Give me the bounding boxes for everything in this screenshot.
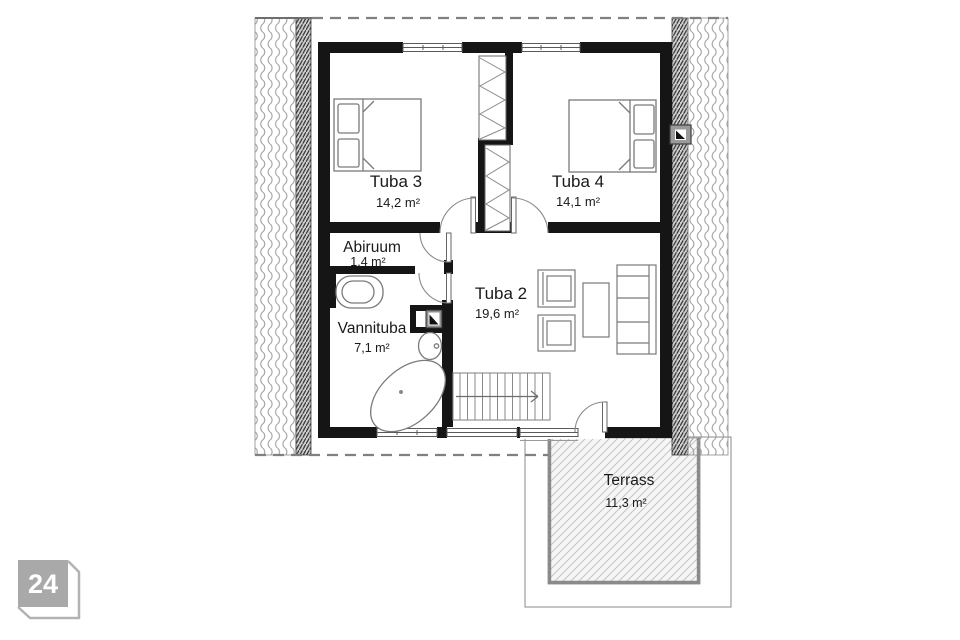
room-area-tuba3: 14,2 m² [376,195,421,210]
badge-number: 24 [28,569,58,599]
room-label-abiruum: Abiruum [343,239,401,256]
stairs [453,373,550,420]
room-area-abiruum: 1,4 m² [350,255,385,269]
roof-batten-band-left [296,18,311,455]
wall-top [318,42,672,53]
bed-icon-tuba3 [334,99,421,171]
roof-left [255,18,311,455]
room-label-tuba3: Tuba 3 [370,172,422,191]
window-icon [522,44,580,52]
room-area-tuba4: 14,1 m² [556,194,601,209]
roof-tile-hatch-left [255,18,296,455]
vent-icon [670,125,691,144]
room-area-terrass: 11,3 m² [605,496,646,510]
room-label-terrass: Terrass [604,472,655,489]
sofa-icon [617,265,656,354]
chimney-icon [410,305,444,333]
sink-icon [419,333,442,360]
roof-batten-band-right [672,18,688,455]
floor-plan-canvas: Tuba 3 14,2 m² Tuba 4 14,1 m² Abiruum 1,… [0,0,960,640]
wardrobe-icon-tuba3 [479,56,506,140]
wall-bedrooms-south-1 [330,222,440,233]
room-label-tuba4: Tuba 4 [552,172,604,191]
room-area-vannituba: 7,1 m² [354,341,389,355]
wall-closet-divider-lower [478,145,485,233]
window-icon [447,429,517,437]
window-icon [403,44,462,52]
armchair-icon-2 [538,315,575,351]
opening-door-terrace [577,426,605,439]
wall-left [318,42,330,438]
bed-icon-tuba4 [569,100,656,172]
wall-plumbing-stub [320,271,336,308]
roof-tile-hatch-right [688,18,728,455]
room-label-tuba2: Tuba 2 [475,284,527,303]
roof-right [672,18,728,455]
wall-bedrooms-south-3 [548,222,660,233]
terrace-deck-hatch [548,438,700,584]
wardrobe-icon-tuba4 [485,145,510,231]
room-area-tuba2: 19,6 m² [475,306,520,321]
armchair-icon-1 [538,270,575,307]
coffee-table-icon [583,283,609,337]
toilet-icon [336,276,383,308]
terrace [525,437,731,607]
wall-right [660,42,672,438]
room-label-vannituba: Vannituba [338,320,407,337]
